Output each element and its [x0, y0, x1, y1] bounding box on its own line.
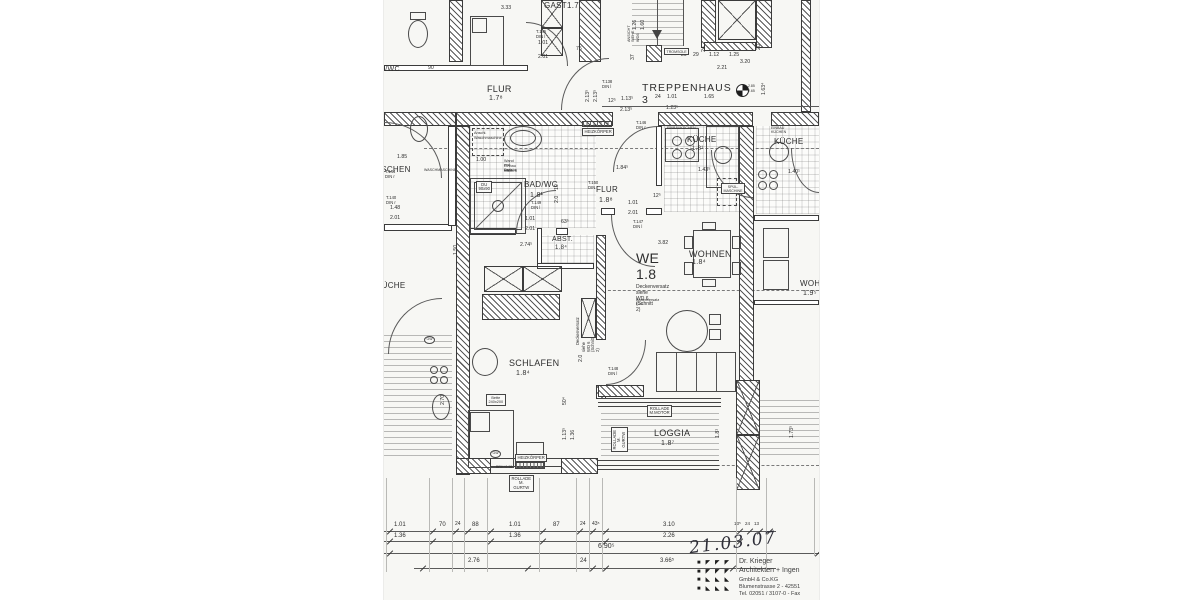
elevator-wall [756, 0, 772, 48]
room-label: WE 1.8 [636, 251, 659, 282]
dim-label: 1.01 [394, 522, 406, 529]
door-tag: T.146 DIN r [636, 121, 646, 130]
stove-burner [769, 181, 778, 190]
dim-label: 1.60 [641, 20, 647, 30]
sideboard [656, 352, 736, 392]
loggia-rail [598, 460, 719, 470]
note-label: EINBAU KÜCHEN [771, 126, 786, 134]
stove-burner [430, 366, 438, 374]
stove-burner [769, 170, 778, 179]
dim-label: 24 [455, 522, 461, 528]
dim-label: 1.36 [394, 533, 406, 540]
stamp-logo-row: ■ ◣ ◣ ◣ [697, 576, 731, 585]
extension-line [452, 478, 453, 572]
stud-wall [601, 208, 615, 215]
radiator [515, 462, 545, 469]
stove-burner [672, 136, 682, 146]
dim-label: 1.01 [538, 41, 548, 47]
toilet-tank [410, 12, 426, 20]
dim-label: 87 [553, 522, 560, 529]
dim-label: 1.01 [509, 522, 521, 529]
dim-label: 1.84⁵ [616, 166, 628, 172]
dim-label: 2.0 [579, 355, 585, 362]
dim-label: 2.01 [538, 55, 548, 61]
door-tag: T.149 DIN l [531, 201, 541, 210]
room-label: WOHNEN [800, 280, 820, 289]
wardrobe [484, 266, 523, 292]
dim-label: 2.01 [390, 216, 400, 222]
room-label: WOHNEN [689, 249, 732, 259]
trommsole-block [646, 45, 662, 62]
dim-label: 29 [693, 53, 699, 59]
dim-label: 90 [428, 66, 434, 72]
dim-label: 1.01 [525, 217, 535, 223]
dim-label: 2.01 [628, 211, 638, 217]
stamp-firm-type: Architekten + Ingen [739, 567, 800, 574]
note-label: WASCHMASCHINE [424, 168, 456, 172]
equipment-label: HEIZKÖRPER [582, 128, 614, 136]
stud-wall [754, 300, 819, 305]
architect-stamp: ■ ◤ ◤ ◤■ ◤ ◤ ◤■ ◣ ◣ ◣■ ◣ ◣ ◣ Dr. Krieger… [697, 558, 820, 600]
door-arc [388, 298, 442, 354]
stud-wall [537, 228, 542, 268]
dim-label: 1.73⁵ [790, 426, 796, 438]
room-label: GAST1.7 [544, 2, 579, 11]
room-label: SCHLAFEN [509, 358, 559, 368]
room-label: BAD/WC [383, 66, 400, 74]
equipment-label: DU 90x90 [476, 181, 492, 193]
dim-label: 1.01 [667, 95, 677, 101]
sofa [763, 260, 789, 290]
dim-label: 50⁴ [563, 397, 569, 405]
dim-label: 2.70 [441, 395, 447, 405]
door-tag: T.147 DIN l [633, 220, 643, 229]
dim-label: 1.63⁴ [762, 83, 768, 95]
dim-label: 24 [580, 522, 586, 528]
note-label: Deckenversatz [576, 317, 581, 345]
room-label: KÜCHE [774, 138, 804, 147]
note-label: EINBAUKÜCHEN [667, 126, 696, 130]
wall-segment [801, 0, 811, 112]
door-tag: T.150 DIN r [588, 181, 598, 190]
stud-wall [384, 224, 452, 231]
dim-label: 3.66⁵ [660, 558, 674, 565]
stamp-firm-legal: GmbH & Co.KG [739, 577, 778, 583]
extension-line [814, 478, 815, 556]
dimension-chain-line [602, 106, 819, 107]
elevator-wall [704, 42, 756, 51]
shelf [581, 298, 596, 338]
equipment-label: Bette 240x200 [486, 394, 506, 406]
dim-label: 1.25 [729, 53, 739, 59]
dim-label: 2.26 [663, 533, 675, 540]
note-label: 2.65 [748, 90, 755, 94]
door-tag: T.148 DIN l [608, 367, 618, 376]
window-lintel [598, 385, 644, 397]
bed-pillow [470, 412, 490, 432]
stud-wall [556, 228, 568, 235]
note-label: ANSICHT SIEHE WD6 [627, 25, 640, 42]
dim-label: 1.48 [390, 206, 400, 212]
chair [472, 348, 498, 376]
room-label: FLUR [596, 186, 618, 195]
dim-label: 12⁵ [608, 99, 616, 105]
wall-segment [596, 235, 606, 340]
dim-label: 63⁵ [561, 220, 569, 226]
sofa [763, 228, 789, 258]
dim-label: 1.00 [476, 158, 486, 164]
dim-label: 2.13⁵ [620, 108, 632, 114]
wardrobe [482, 294, 560, 320]
dim-label: 1.13⁵ [621, 97, 633, 103]
note-label: mauern [504, 169, 517, 173]
equipment-label: ROLLADE M. GURTW [509, 475, 534, 492]
round-table [666, 310, 708, 352]
dim-label: 3.20 [740, 60, 750, 66]
stamp-firm-name: Dr. Krieger [739, 558, 772, 565]
dim-label: 43⁵ [592, 522, 600, 528]
stud-wall [448, 126, 456, 226]
room-label: 1.8⁴ [555, 245, 567, 252]
stair-direction-arrow [652, 30, 662, 39]
stamp-logo-row: ■ ◤ ◤ ◤ [697, 559, 731, 568]
dim-label: 24 [745, 521, 750, 526]
room-label: 1.8⁴ [516, 370, 530, 378]
dim-label: 2.0 [555, 196, 561, 203]
wardrobe [523, 266, 562, 292]
wall-segment [579, 0, 601, 62]
note-label: Bodenversatz E20 [636, 298, 659, 307]
floorplan-scan: GAST1.7FLUR1.7⁸TREPPENHAUS 3BAD/WC1.8¹FL… [383, 0, 820, 600]
neighbor-loggia-floor [756, 400, 819, 455]
room-label: 1.8⁷ [661, 440, 674, 448]
extension-line [464, 478, 465, 572]
dim-label: 3.82 [658, 241, 668, 247]
note-label: siehe WD 6 (Schnitt 2) [582, 338, 601, 352]
room-label: KÜCHE [687, 136, 717, 145]
room-label: 1.8⁸ [599, 197, 613, 205]
symbol-tag: GW [424, 336, 435, 344]
dim-label: 1.01 [628, 201, 638, 207]
floorplan-page: GAST1.7FLUR1.7⁸TREPPENHAUS 3BAD/WC1.8¹FL… [0, 0, 1200, 600]
note-label: BRH+0.90 [496, 466, 512, 470]
wall-segment [771, 112, 819, 126]
stud-wall [646, 208, 662, 215]
room-label: 1.8¹ [530, 192, 543, 200]
dim-label: 1.43⁵ [698, 168, 710, 174]
stud-wall [384, 65, 528, 71]
equipment-label: ROLLADE M. GURTW [611, 427, 628, 452]
door-tag: T.145 DIN l [536, 30, 546, 39]
dim-label: 2.21 [717, 66, 727, 72]
dim-label: 1.13⁵ [563, 428, 569, 440]
radiator [582, 121, 612, 127]
dim-label: 88 [472, 522, 479, 529]
dim-label: 12⁵ [653, 194, 661, 200]
dim-label: 75 [576, 47, 582, 53]
bath-sink-basin [510, 130, 536, 146]
dim-label: 1.40¹ [788, 170, 800, 176]
extension-line [429, 478, 430, 572]
chair [684, 236, 693, 249]
room-label: 1.9⁵ [803, 290, 817, 298]
stamp-logo-row: ■ ◤ ◤ ◤ [697, 568, 731, 577]
room-label: FLUR [487, 84, 512, 94]
extension-line [539, 478, 540, 572]
toilet [410, 116, 428, 142]
elevator-wall [701, 0, 716, 48]
dim-label: 1.36 [571, 430, 577, 440]
dim-label: 37 [631, 54, 637, 60]
loggia-pillar-cross [736, 435, 760, 490]
dim-label: 13 [754, 521, 759, 526]
dim-label: 24 [580, 558, 587, 565]
dim-label: 2.76 [468, 558, 480, 565]
stove-burner [672, 149, 682, 159]
deckenversatz-line [598, 290, 819, 291]
chair [732, 236, 741, 249]
dim-label: 24 [702, 46, 708, 52]
extension-line [386, 478, 387, 572]
stamp-firm-phone: Tel. 02051 / 3107-0 - Fax [739, 591, 800, 597]
dim-label: 24 [655, 95, 661, 101]
dim-label: 1.50 [454, 245, 460, 255]
dim-label: 1.8¹ [716, 429, 722, 438]
side-unit [709, 314, 721, 325]
chair [702, 279, 716, 287]
dimension-chain-line [384, 541, 741, 542]
extension-line [589, 478, 590, 572]
dim-label: 3.33 [501, 6, 511, 12]
note-label: Waschmaschine [474, 136, 502, 140]
door-tag: T.138 DIN l [602, 80, 612, 89]
door-arc [606, 340, 646, 385]
stove-burner [440, 366, 448, 374]
dim-label: 10 [555, 184, 561, 190]
symbol-tag: GW [490, 450, 501, 458]
equipment-label: HEIZKÖRPER [515, 454, 547, 462]
wall-segment [449, 0, 463, 62]
extension-line [487, 478, 488, 572]
stair-centerline [657, 0, 658, 46]
room-label: BAD/WC [524, 181, 558, 190]
stamp-firm-address: Blumenstrasse 2 - 42551 [739, 584, 800, 590]
dim-label: 2.13⁵ [586, 90, 592, 102]
dim-label: 20 [757, 44, 763, 50]
equipment-label: ROLLADE M.MOTOR [647, 405, 672, 417]
dim-label: 6.90⁵ [598, 543, 615, 551]
toilet [408, 20, 428, 48]
loggia-pillar-cross [736, 380, 760, 435]
dim-label: 70 [439, 522, 446, 529]
room-label: KÜCHE [383, 282, 406, 291]
wall-segment [561, 458, 598, 474]
dimension-tick [815, 550, 820, 556]
door-tag: T.144 DIN r [385, 170, 395, 179]
equipment-label: SPÜL- MASCHINE [721, 183, 745, 194]
stove-burner [440, 376, 448, 384]
room-label: 1.7⁸ [489, 95, 503, 103]
extension-line [576, 478, 577, 572]
door-tag: T.140 DIN r [386, 196, 396, 205]
room-label: 1.8⁴ [692, 259, 706, 267]
extension-line [602, 478, 603, 572]
equipment-label: TROMSOLE [664, 48, 689, 55]
stamp-logo: ■ ◤ ◤ ◤■ ◤ ◤ ◤■ ◣ ◣ ◣■ ◣ ◣ ◣ [697, 559, 731, 594]
dim-label: 3.10 [663, 522, 675, 529]
gast-pillow [472, 18, 487, 33]
chair [702, 222, 716, 230]
stove-burner [758, 170, 767, 179]
elevator-shaft [718, 0, 756, 40]
side-unit [709, 329, 721, 340]
shower-drain [492, 200, 504, 212]
stamp-logo-row: ■ ◣ ◣ ◣ [697, 585, 731, 594]
dim-label: 1.65 [704, 95, 714, 101]
dim-label: 2.74⁵ [520, 243, 532, 249]
stove-burner [758, 181, 767, 190]
room-label: ABST. [552, 236, 573, 244]
chair [732, 262, 741, 275]
room-label: 1.8¹ [692, 146, 704, 153]
dim-label: 1.12 [709, 53, 719, 59]
stud-wall [754, 215, 819, 221]
dim-label: 2.01 [525, 227, 535, 233]
kitchen-sink [714, 146, 732, 164]
dim-label: 2.13⁵ [594, 90, 600, 102]
wall-segment [658, 112, 753, 126]
dim-label: 1.36 [509, 533, 521, 540]
stove-burner [430, 376, 438, 384]
room-label: LOGGIA [654, 428, 690, 438]
note-label: Anschl. [474, 131, 486, 135]
dim-label: 1.85 [397, 155, 407, 161]
